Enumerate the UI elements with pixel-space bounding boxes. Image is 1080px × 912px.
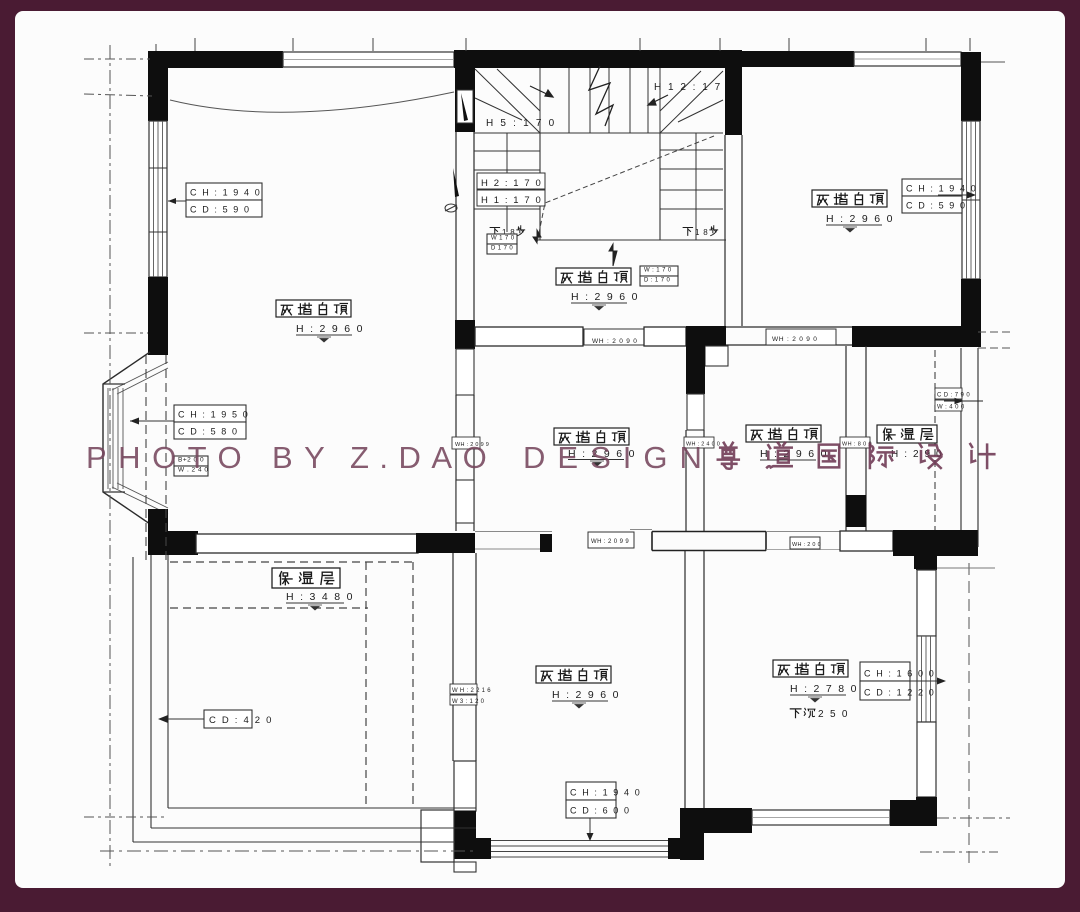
svg-text:C D : 5 9 0: C D : 5 9 0 [906, 201, 967, 211]
svg-text:C D : 5 8 0: C D : 5 8 0 [178, 427, 239, 437]
svg-text:H 1 : 1 7 0: H 1 : 1 7 0 [481, 195, 542, 206]
svg-text:C D : 6 0 0: C D : 6 0 0 [570, 806, 631, 816]
svg-text:C H : 1 9 5 0: C H : 1 9 5 0 [178, 410, 249, 420]
svg-text:WH : 2 0 9 0: WH : 2 0 9 0 [592, 338, 638, 345]
svg-text:2 5 0: 2 5 0 [818, 709, 849, 720]
svg-text:D 1 7 0: D 1 7 0 [491, 246, 513, 252]
svg-text:PHOTO: PHOTO [86, 440, 253, 475]
svg-text:H 1 2 : 1 7: H 1 2 : 1 7 [654, 82, 722, 93]
svg-text:H : 3 4 8 0: H : 3 4 8 0 [286, 591, 354, 603]
svg-text:W 1 7 0: W 1 7 0 [491, 236, 515, 242]
svg-text:H 2 : 1 7 0: H 2 : 1 7 0 [481, 178, 542, 189]
svg-text:WH : 2 0 9 9: WH : 2 0 9 9 [591, 539, 629, 545]
svg-text:WH : 8 0 0: WH : 8 0 0 [842, 442, 872, 448]
svg-text:W : 4 0 0: W : 4 0 0 [937, 405, 965, 411]
svg-text:C D : 5 9 0: C D : 5 9 0 [190, 205, 251, 215]
svg-text:C D : 1 2 2 0: C D : 1 2 2 0 [864, 688, 935, 698]
svg-text:H : 2 9 6 0: H : 2 9 6 0 [571, 291, 639, 303]
svg-text:W 3 : 1 2 0: W 3 : 1 2 0 [452, 699, 485, 705]
svg-text:W : 1 7 0: W : 1 7 0 [644, 268, 672, 274]
svg-text:C H : 1 9 4 0: C H : 1 9 4 0 [906, 184, 977, 194]
svg-text:C H : 1 6 0 0: C H : 1 6 0 0 [864, 669, 935, 679]
svg-text:C H : 1 9 4 0: C H : 1 9 4 0 [190, 188, 261, 198]
svg-text:WH : 2 0 0: WH : 2 0 0 [792, 542, 821, 548]
svg-text:C D : 7 9 0: C D : 7 9 0 [937, 393, 970, 399]
svg-text:H : 2 9 6 0: H : 2 9 6 0 [296, 323, 364, 335]
svg-text:BY: BY [272, 440, 336, 475]
svg-text:C H : 1 9 4 0: C H : 1 9 4 0 [570, 788, 641, 798]
svg-text:H : 2 9 6 0: H : 2 9 6 0 [826, 213, 894, 225]
svg-text:D : 1 7 0: D : 1 7 0 [644, 278, 671, 284]
svg-text:1 8: 1 8 [695, 228, 709, 237]
svg-text:Z.DAO: Z.DAO [350, 440, 497, 475]
svg-text:WH : 2 0 9 0: WH : 2 0 9 0 [772, 336, 818, 343]
svg-text:H : 2 9 6 0: H : 2 9 6 0 [552, 689, 620, 701]
svg-text:H : 2 9 0: H : 2 9 0 [891, 449, 943, 460]
svg-text:DESIGN: DESIGN [523, 440, 714, 475]
svg-text:W H : 2 2 1 6: W H : 2 2 1 6 [452, 688, 491, 694]
svg-text:H : 2 7 8 0: H : 2 7 8 0 [790, 683, 858, 695]
svg-text:H 5 : 1 7 0: H 5 : 1 7 0 [486, 118, 556, 129]
svg-text:C D : 4 2 0: C D : 4 2 0 [209, 715, 273, 726]
